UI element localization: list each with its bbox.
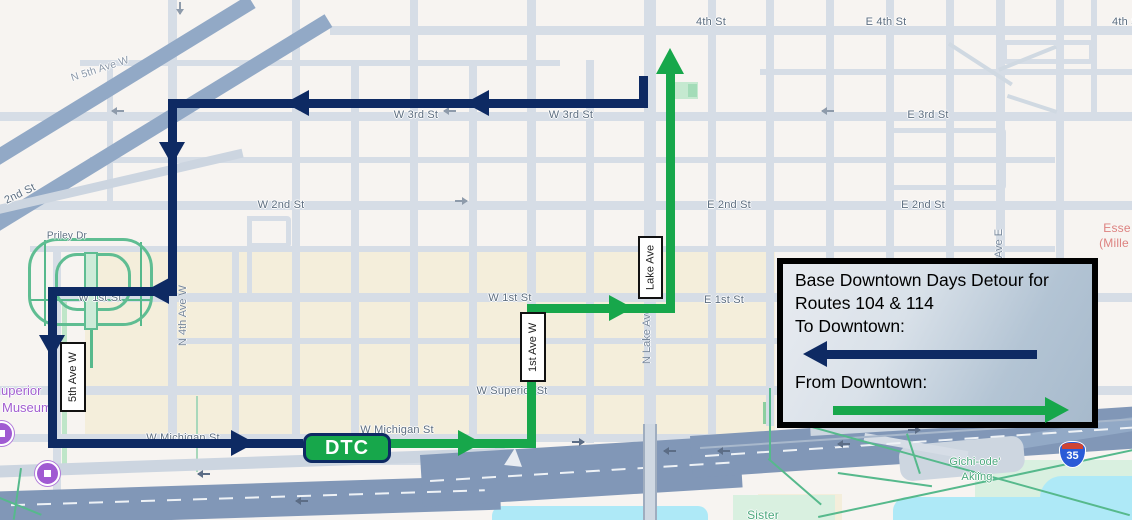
legend-title-line1: Base Downtown Days Detour for	[795, 269, 1080, 292]
museum-label: Museum	[2, 400, 52, 415]
museum-icon	[0, 421, 14, 446]
street-segment	[410, 0, 418, 443]
route-arrow-left-icon	[465, 90, 489, 116]
street-segment	[351, 60, 359, 443]
water-area	[1040, 476, 1132, 520]
street-segment	[28, 201, 1132, 210]
one-way-arrow-icon	[455, 200, 467, 202]
road-loop	[888, 128, 1006, 190]
street-label-vertical: Ave E	[993, 214, 1005, 258]
street-segment	[292, 0, 300, 443]
street-label: W 3rd St	[549, 109, 593, 121]
street-segment	[708, 0, 716, 440]
hospital-label: (Mille	[1099, 236, 1129, 250]
route-from-downtown-segment	[527, 304, 675, 313]
street-label: E 2nd St	[707, 199, 751, 211]
legend-title-line2: Routes 104 & 114	[795, 292, 1080, 315]
legend-from-downtown-label: From Downtown:	[795, 371, 1080, 394]
park-label: Sister	[747, 508, 779, 520]
avenue-sign-5th-ave-w: 5th Ave W	[60, 342, 86, 412]
street-label: W 3rd St	[394, 109, 438, 121]
shield-red-band	[1062, 443, 1083, 449]
route-from-downtown-segment	[666, 74, 675, 313]
legend-to-downtown-label: To Downtown:	[795, 315, 1080, 338]
park-area	[688, 84, 697, 97]
legend-box: Base Downtown Days Detour for Routes 104…	[777, 258, 1098, 428]
water-area	[492, 506, 708, 520]
lane-arrow-icon	[838, 443, 850, 445]
route-arrow-right-icon	[231, 430, 255, 456]
lane-arrow-icon	[198, 473, 210, 475]
park-label: Akiing	[961, 471, 992, 483]
street-label: E 1st St	[704, 294, 744, 306]
lane-arrow-icon	[296, 500, 308, 502]
street-label: E 3rd St	[907, 109, 948, 121]
hospital-label: Esse	[1103, 221, 1130, 235]
street-segment	[232, 248, 239, 443]
dtc-station-badge: DTC	[303, 433, 391, 463]
avenue-sign-1st-ave-w: 1st Ave W	[520, 312, 546, 382]
route-arrow-up-icon	[656, 48, 684, 74]
avenue-sign-lake-ave: Lake Ave	[638, 236, 663, 299]
street-label: E 2nd St	[901, 199, 945, 211]
route-to-downtown-segment	[168, 99, 177, 296]
one-way-arrow-icon	[179, 2, 181, 14]
lane-arrow-icon	[908, 429, 920, 431]
to-downtown-arrow-icon	[795, 340, 1080, 367]
street-label: W Superior St	[476, 385, 547, 397]
museum-icon	[35, 461, 60, 486]
route-arrow-right-icon	[458, 430, 482, 456]
route-arrow-left-icon	[145, 278, 169, 304]
one-way-arrow-icon	[444, 110, 456, 112]
street-label: W 2nd St	[258, 199, 305, 211]
park-label: Gichi-ode'	[949, 456, 1000, 468]
winding-road	[1007, 94, 1058, 114]
from-downtown-arrow-icon	[795, 396, 1080, 423]
museum-label: uperior	[1, 383, 41, 398]
route-arrow-right-icon	[609, 295, 633, 321]
lane-arrow-icon	[718, 450, 730, 452]
one-way-arrow-icon	[112, 110, 124, 112]
route-to-downtown-segment	[48, 287, 57, 448]
street-label: 4th St	[696, 16, 726, 28]
street-label: W 1st St	[488, 292, 531, 304]
legend-navy-shaft	[827, 350, 1037, 359]
trail-line	[769, 388, 771, 460]
legend-navy-arrowhead	[803, 341, 827, 367]
traffic-island	[504, 447, 524, 467]
street-segment	[766, 0, 774, 426]
shield-number: 35	[1060, 450, 1085, 462]
lake-ave-overpass	[643, 424, 657, 520]
route-arrow-down-icon	[159, 142, 185, 165]
street-label-vertical: N 4th Ave W	[177, 266, 189, 346]
route-to-downtown-segment	[48, 439, 303, 448]
street-segment	[30, 246, 1055, 252]
trail-line	[90, 326, 93, 368]
legend-green-arrowhead	[1045, 397, 1069, 423]
one-way-arrow-icon	[822, 110, 834, 112]
street-label: E 4th St	[866, 16, 907, 28]
road-loop	[247, 216, 291, 248]
lane-arrow-icon	[572, 441, 584, 443]
legend-green-shaft	[833, 406, 1045, 415]
detour-map: 4th St E 4th St 4th St W 3rd St W 3rd St…	[0, 0, 1132, 520]
route-arrow-left-icon	[285, 90, 309, 116]
street-label: 4th St	[1112, 16, 1132, 28]
park-label: Priley Dr	[47, 231, 87, 242]
street-segment	[330, 26, 1132, 35]
route-to-downtown-segment	[172, 99, 648, 108]
lane-arrow-icon	[664, 450, 676, 452]
